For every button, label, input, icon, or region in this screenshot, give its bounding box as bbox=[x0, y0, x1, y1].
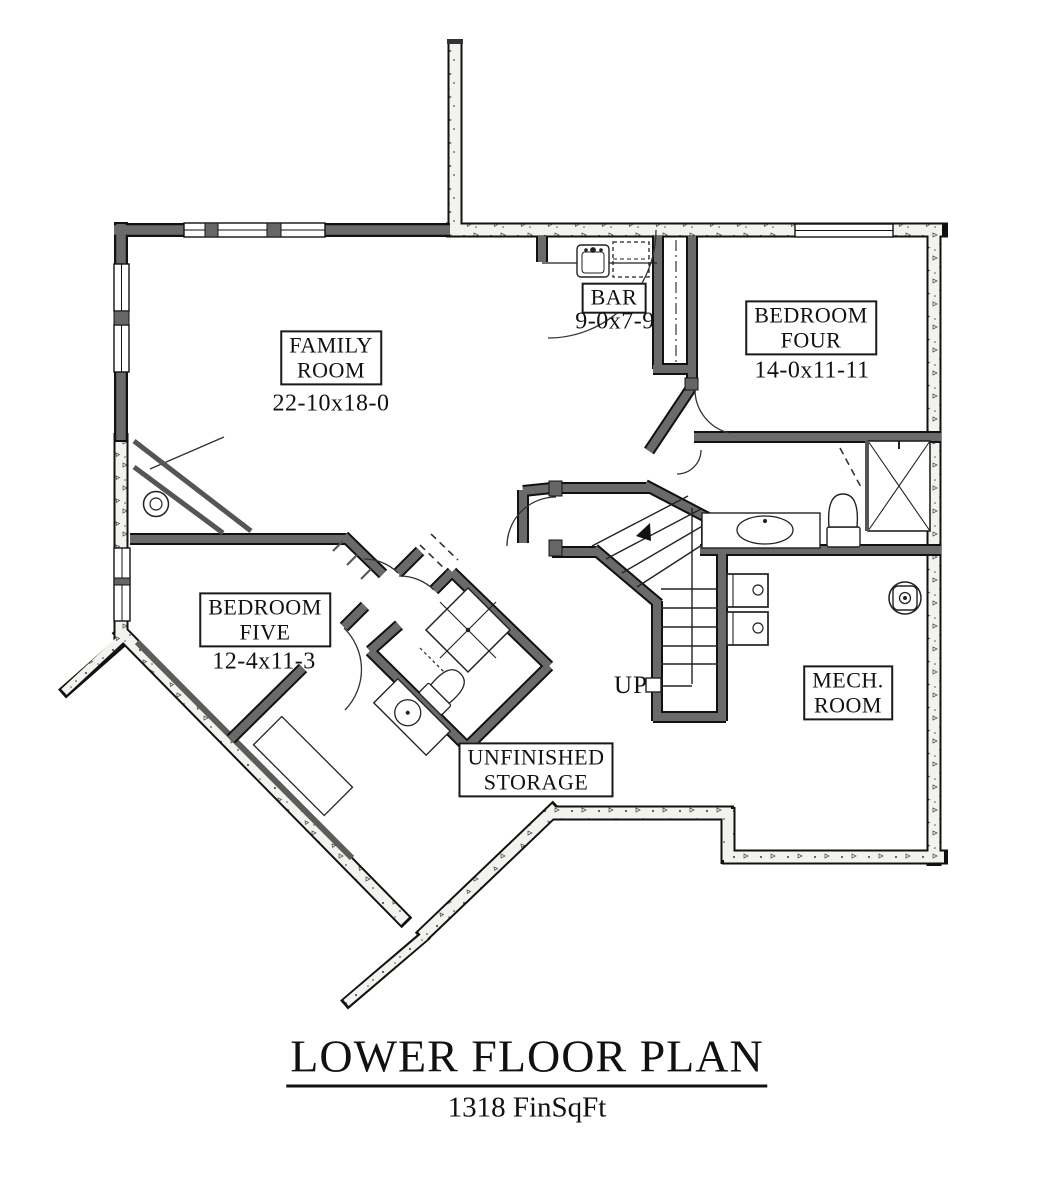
window-mullions bbox=[114, 223, 281, 585]
stair-direction-arrow bbox=[636, 523, 651, 541]
exterior-frame-walls bbox=[114, 222, 450, 442]
exterior-frame-walls-fill bbox=[114, 224, 450, 440]
floor-plan-drawing bbox=[0, 0, 1054, 1202]
floor-plan-page: FAMILY ROOM 22-10x18-0 BAR 9-0x7-9 BEDRO… bbox=[0, 0, 1054, 1202]
windows bbox=[114, 223, 893, 621]
sump-closet bbox=[134, 441, 251, 533]
bar-area bbox=[542, 242, 657, 277]
bar-faucet bbox=[591, 248, 596, 253]
diagonal-wall-inner-face bbox=[137, 642, 352, 858]
window-center-lines bbox=[122, 230, 894, 621]
protruding-wall-cap bbox=[447, 39, 463, 44]
bathroom-four bbox=[702, 441, 930, 548]
mech-equipment bbox=[727, 574, 921, 645]
stair-newel bbox=[646, 678, 661, 692]
toilet-tank bbox=[827, 527, 860, 547]
interior-walls-fill bbox=[130, 236, 941, 747]
shower-curb-dashes bbox=[420, 648, 444, 672]
storage-counter bbox=[254, 717, 353, 816]
toilet-bowl bbox=[829, 494, 858, 527]
